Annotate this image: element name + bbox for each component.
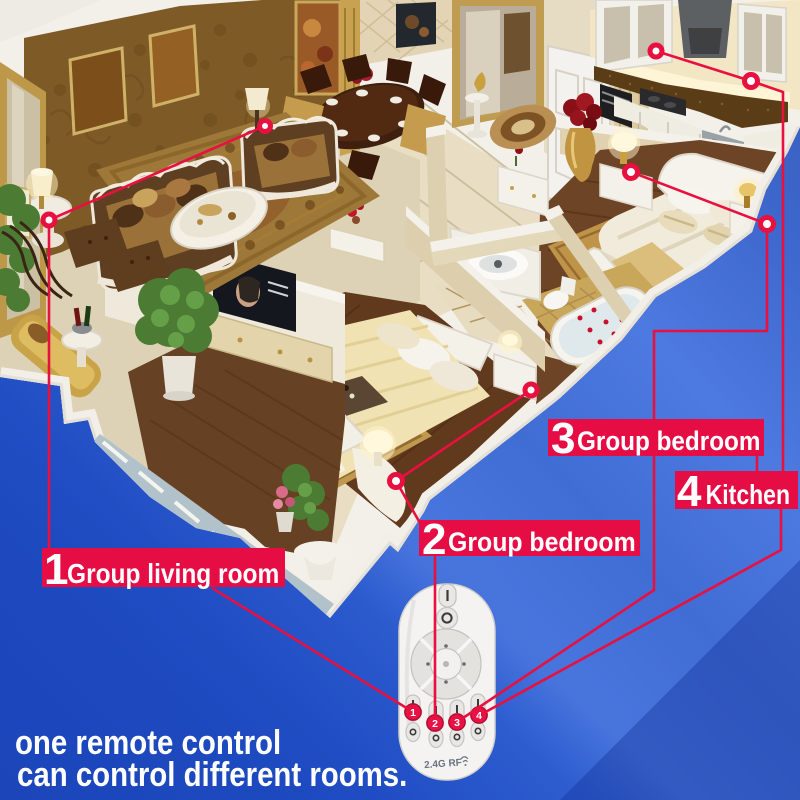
svg-text:4: 4 (677, 467, 702, 516)
svg-text:2: 2 (422, 515, 446, 564)
svg-text:4: 4 (476, 710, 482, 722)
svg-text:can control different rooms.: can control different rooms. (17, 755, 407, 794)
svg-text:3: 3 (454, 717, 460, 729)
svg-text:1: 1 (410, 707, 416, 719)
svg-text:Group bedroom: Group bedroom (448, 528, 636, 557)
svg-text:Group living room: Group living room (67, 557, 279, 589)
svg-text:Kitchen: Kitchen (706, 480, 790, 511)
svg-text:Group bedroom: Group bedroom (577, 427, 761, 456)
svg-text:3: 3 (551, 414, 575, 463)
svg-text:1: 1 (44, 545, 68, 594)
svg-text:2: 2 (432, 718, 438, 730)
